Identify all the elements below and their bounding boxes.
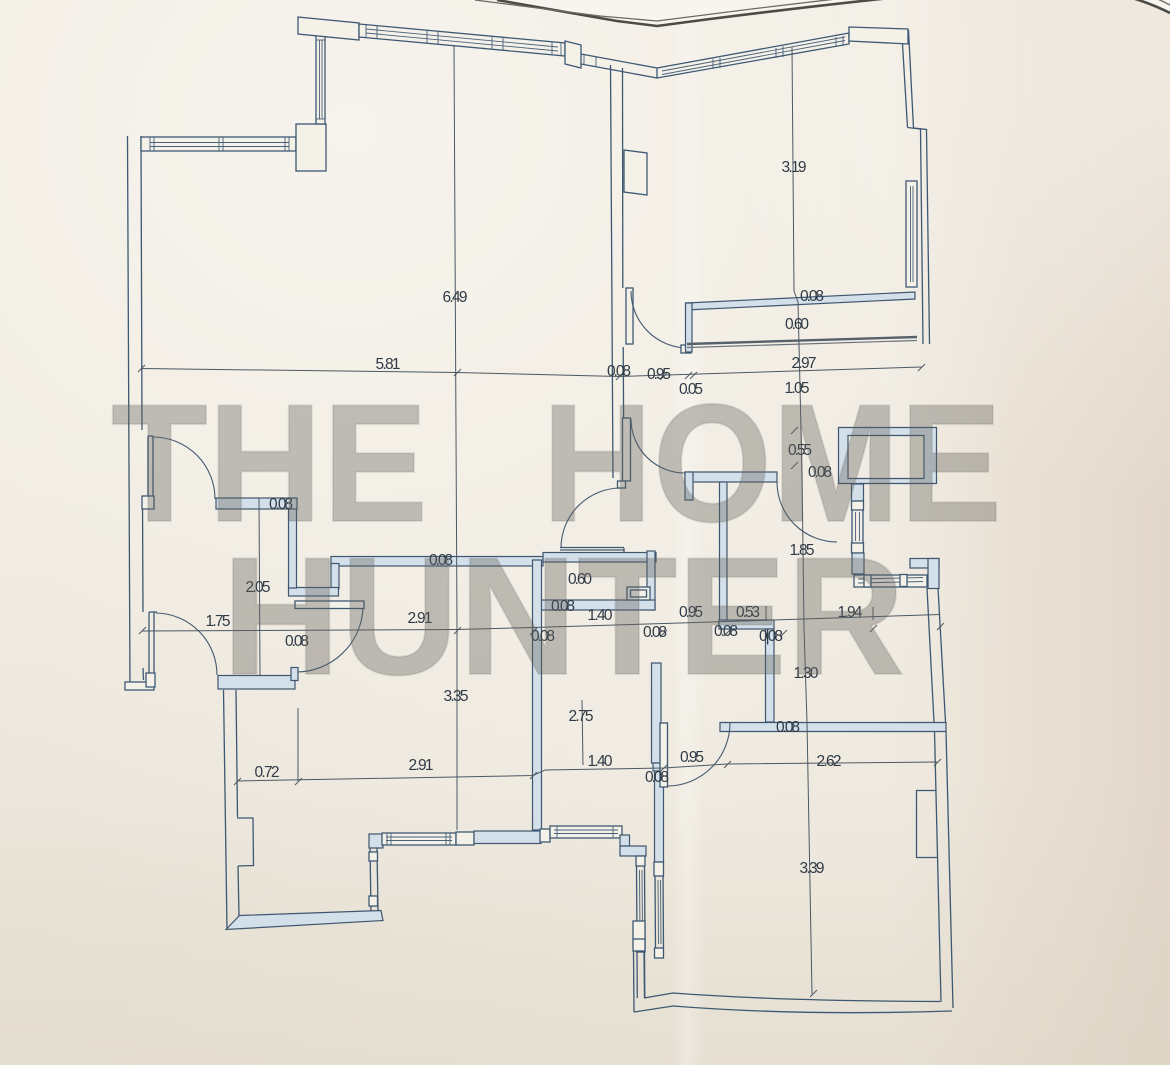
svg-text:1.40: 1.40 [588,753,613,770]
svg-text:0.72: 0.72 [255,764,280,781]
svg-text:2.62: 2.62 [817,753,842,770]
svg-text:0.08: 0.08 [776,719,800,736]
svg-text:HUNTER: HUNTER [222,522,905,710]
svg-text:2.91: 2.91 [409,757,434,774]
svg-text:3.39: 3.39 [800,860,825,877]
svg-text:6.49: 6.49 [443,289,468,306]
svg-text:3.19: 3.19 [782,159,807,176]
svg-text:0.95: 0.95 [680,749,704,766]
svg-text:2.75: 2.75 [569,708,594,725]
svg-text:0.08: 0.08 [800,288,824,305]
svg-text:0.60: 0.60 [785,316,809,333]
svg-text:0.08: 0.08 [645,769,669,786]
